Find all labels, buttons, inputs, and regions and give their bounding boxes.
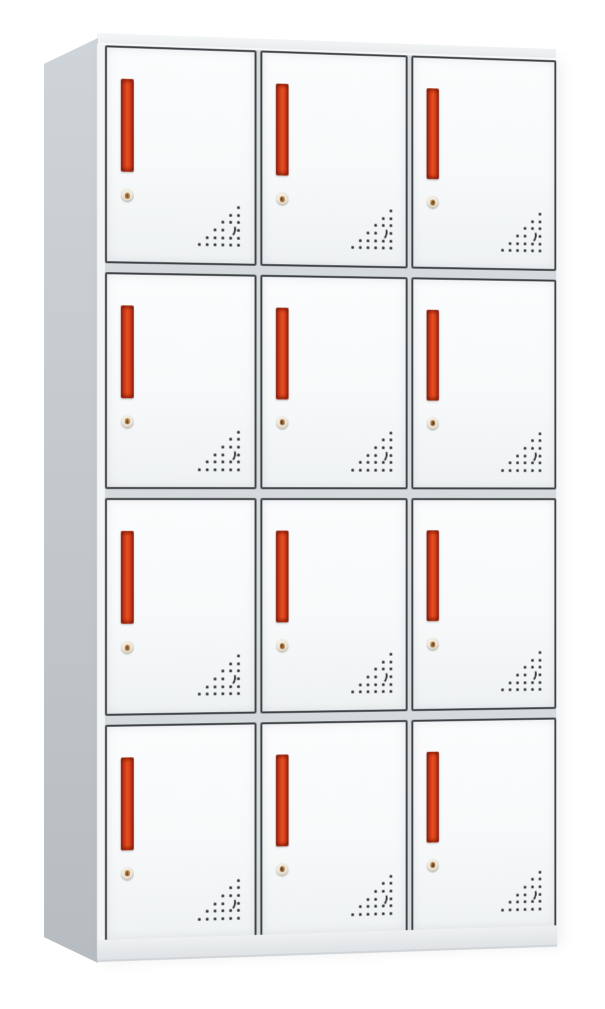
vent-hole-dot	[508, 461, 511, 464]
vent-hole-dot	[229, 887, 232, 890]
lock-keyhole-slot	[127, 871, 128, 875]
vent-hole-dot	[237, 692, 240, 695]
vent-holes-icon	[196, 203, 243, 249]
vent-hole-dot	[214, 677, 217, 680]
door-lock-icon	[276, 862, 289, 875]
vent-hole-dot	[237, 886, 240, 889]
lock-core	[279, 196, 284, 202]
vent-hole-dot	[237, 236, 240, 239]
lock-keyhole-slot	[281, 197, 282, 200]
vent-hole-dot	[538, 432, 541, 435]
vent-hole-dot	[206, 693, 209, 696]
vent-hole-dot	[523, 249, 526, 252]
vent-hole-dot	[222, 685, 225, 688]
lock-keyhole-slot	[127, 645, 128, 649]
vent-hole-dot	[523, 908, 526, 911]
vent-hole-dot	[237, 879, 240, 882]
vent-hole-dot	[237, 662, 240, 665]
vent-hole-dot	[374, 912, 377, 915]
vent-hole-dot	[538, 461, 541, 464]
lock-keyhole-slot	[432, 642, 433, 645]
vent-hole-dot	[366, 468, 369, 471]
vent-hole-dot	[366, 461, 369, 464]
vent-hole-dot	[389, 683, 392, 686]
vent-hole-dot	[389, 454, 392, 457]
door-lock-icon	[427, 417, 439, 430]
vent-hole-dot	[389, 239, 392, 242]
vent-hole-dot	[523, 227, 526, 230]
vent-hole-dot	[222, 692, 225, 695]
locker-cabinet-photo	[0, 0, 605, 1009]
lock-core	[125, 870, 130, 876]
vent-hole-dot	[237, 453, 240, 456]
vent-hole-dot	[366, 454, 369, 457]
vent-hole-dot	[531, 249, 534, 252]
vent-hole-dot	[374, 890, 377, 893]
vent-hole-dot	[366, 905, 369, 908]
vent-hole-dot	[523, 461, 526, 464]
vent-hole-dot	[214, 917, 217, 920]
vent-crescent-hole	[377, 891, 389, 905]
door-lock-icon	[276, 416, 289, 429]
vent-hole-dot	[531, 220, 534, 223]
vent-hole-dot	[222, 244, 225, 247]
vent-hole-dot	[389, 882, 392, 885]
vent-hole-dot	[374, 461, 377, 464]
vent-hole-dot	[538, 242, 541, 245]
vent-hole-dot	[389, 653, 392, 656]
vent-crescent-hole	[225, 672, 237, 687]
vent-hole-dot	[523, 469, 526, 472]
vent-hole-dot	[523, 235, 526, 238]
vent-hole-dot	[222, 236, 225, 239]
vent-hole-dot	[389, 446, 392, 449]
vent-hole-dot	[351, 913, 354, 916]
lock-core	[431, 199, 436, 205]
door-handle-icon	[427, 751, 439, 842]
door-lock-icon	[427, 638, 439, 651]
vent-hole-dot	[351, 468, 354, 471]
vent-hole-dot	[359, 239, 362, 242]
vent-holes-icon	[196, 876, 243, 923]
vent-hole-dot	[382, 660, 385, 663]
locker-door	[260, 274, 408, 489]
vent-holes-icon	[349, 872, 395, 918]
locker-door-grid	[105, 45, 556, 941]
vent-hole-dot	[531, 878, 534, 881]
vent-hole-dot	[389, 224, 392, 227]
vent-hole-dot	[538, 666, 541, 669]
vent-hole-dot	[237, 894, 240, 897]
locker-door	[105, 498, 256, 715]
vent-hole-dot	[237, 916, 240, 919]
vent-hole-dot	[523, 454, 526, 457]
vent-hole-dot	[523, 666, 526, 669]
vent-holes-icon	[349, 429, 395, 474]
vent-hole-dot	[389, 675, 392, 678]
vent-hole-dot	[229, 662, 232, 665]
vent-hole-dot	[516, 908, 519, 911]
door-handle-icon	[121, 757, 134, 850]
vent-hole-dot	[237, 685, 240, 688]
vent-hole-dot	[198, 243, 201, 246]
vent-hole-dot	[538, 870, 541, 873]
vent-hole-dot	[538, 228, 541, 231]
vent-hole-dot	[501, 249, 504, 252]
vent-hole-dot	[374, 224, 377, 227]
vent-hole-dot	[538, 213, 541, 216]
vent-hole-dot	[222, 453, 225, 456]
vent-hole-dot	[237, 446, 240, 449]
vent-holes-icon	[498, 868, 543, 913]
door-handle-icon	[276, 307, 289, 399]
vent-crescent-hole	[225, 447, 237, 462]
vent-crescent-hole	[225, 223, 237, 238]
vent-hole-dot	[523, 242, 526, 245]
vent-hole-dot	[214, 468, 217, 471]
vent-hole-dot	[214, 453, 217, 456]
vent-hole-dot	[222, 460, 225, 463]
door-lock-icon	[121, 415, 134, 428]
vent-hole-dot	[351, 691, 354, 694]
locker-door	[105, 272, 256, 490]
locker-door	[412, 498, 557, 711]
vent-hole-dot	[508, 901, 511, 904]
vent-hole-dot	[508, 469, 511, 472]
vent-hole-dot	[516, 249, 519, 252]
vent-hole-dot	[206, 917, 209, 920]
vent-hole-dot	[389, 875, 392, 878]
vent-hole-dot	[374, 897, 377, 900]
vent-hole-dot	[538, 651, 541, 654]
door-handle-icon	[427, 309, 439, 400]
vent-hole-dot	[531, 659, 534, 662]
vent-hole-dot	[538, 659, 541, 662]
lock-core	[125, 418, 130, 424]
vent-hole-dot	[359, 913, 362, 916]
vent-hole-dot	[538, 220, 541, 223]
vent-crescent-hole	[526, 668, 538, 682]
vent-hole-dot	[229, 468, 232, 471]
vent-hole-dot	[366, 683, 369, 686]
locker-door	[105, 45, 256, 265]
vent-hole-dot	[366, 898, 369, 901]
vent-holes-icon	[196, 428, 243, 473]
vent-hole-dot	[538, 885, 541, 888]
vent-hole-dot	[538, 454, 541, 457]
vent-hole-dot	[523, 688, 526, 691]
vent-holes-icon	[349, 651, 395, 696]
vent-crescent-hole	[377, 226, 389, 241]
door-handle-icon	[121, 531, 134, 624]
door-handle-icon	[427, 88, 439, 179]
vent-hole-dot	[389, 889, 392, 892]
vent-hole-dot	[508, 908, 511, 911]
vent-hole-dot	[538, 250, 541, 253]
lock-core	[279, 419, 284, 425]
vent-crescent-hole	[526, 887, 538, 901]
vent-hole-dot	[206, 243, 209, 246]
vent-hole-dot	[389, 439, 392, 442]
vent-hole-dot	[359, 246, 362, 249]
vent-hole-dot	[222, 902, 225, 905]
vent-hole-dot	[389, 897, 392, 900]
vent-hole-dot	[508, 688, 511, 691]
vent-hole-dot	[374, 683, 377, 686]
door-lock-icon	[427, 196, 439, 209]
vent-hole-dot	[538, 892, 541, 895]
vent-hole-dot	[516, 681, 519, 684]
vent-crescent-hole	[526, 448, 538, 462]
vent-hole-dot	[214, 902, 217, 905]
vent-hole-dot	[389, 912, 392, 915]
vent-hole-dot	[538, 447, 541, 450]
vent-hole-dot	[516, 454, 519, 457]
vent-hole-dot	[237, 438, 240, 441]
vent-hole-dot	[366, 246, 369, 249]
vent-hole-dot	[389, 431, 392, 434]
door-handle-icon	[121, 305, 134, 398]
vent-hole-dot	[198, 918, 201, 921]
vent-hole-dot	[351, 246, 354, 249]
vent-hole-dot	[237, 461, 240, 464]
vent-hole-dot	[531, 907, 534, 910]
vent-hole-dot	[237, 655, 240, 658]
lock-keyhole-slot	[127, 419, 128, 423]
vent-hole-dot	[538, 907, 541, 910]
vent-hole-dot	[538, 900, 541, 903]
vent-hole-dot	[516, 674, 519, 677]
vent-hole-dot	[374, 246, 377, 249]
vent-hole-dot	[366, 912, 369, 915]
vent-hole-dot	[222, 229, 225, 232]
door-lock-icon	[121, 867, 134, 880]
lock-core	[125, 644, 130, 650]
vent-hole-dot	[237, 468, 240, 471]
vent-hole-dot	[237, 901, 240, 904]
vent-hole-dot	[389, 217, 392, 220]
vent-hole-dot	[214, 910, 217, 913]
vent-hole-dot	[501, 689, 504, 692]
vent-hole-dot	[359, 691, 362, 694]
vent-holes-icon	[349, 206, 395, 252]
vent-hole-dot	[214, 236, 217, 239]
vent-hole-dot	[237, 214, 240, 217]
vent-hole-dot	[214, 693, 217, 696]
locker-door	[412, 277, 557, 490]
vent-hole-dot	[516, 893, 519, 896]
vent-hole-dot	[359, 905, 362, 908]
cabinet-front-face	[97, 44, 557, 962]
vent-hole-dot	[374, 690, 377, 693]
lock-keyhole-slot	[281, 867, 282, 870]
vent-hole-dot	[538, 681, 541, 684]
door-lock-icon	[121, 189, 134, 202]
lock-core	[431, 420, 436, 426]
vent-hole-dot	[531, 439, 534, 442]
vent-hole-dot	[516, 242, 519, 245]
lock-core	[279, 643, 284, 649]
cabinet-side-panel	[44, 38, 98, 963]
vent-holes-icon	[498, 210, 543, 255]
vent-hole-dot	[523, 900, 526, 903]
vent-hole-dot	[508, 242, 511, 245]
vent-hole-dot	[229, 438, 232, 441]
door-handle-icon	[121, 79, 134, 172]
vent-hole-dot	[237, 909, 240, 912]
vent-hole-dot	[198, 468, 201, 471]
vent-hole-dot	[229, 917, 232, 920]
lock-core	[279, 866, 284, 872]
vent-hole-dot	[389, 668, 392, 671]
vent-hole-dot	[359, 468, 362, 471]
vent-hole-dot	[538, 439, 541, 442]
vent-holes-icon	[196, 652, 243, 698]
vent-hole-dot	[214, 243, 217, 246]
vent-hole-dot	[374, 454, 377, 457]
vent-hole-dot	[374, 468, 377, 471]
vent-hole-dot	[389, 247, 392, 250]
vent-hole-dot	[523, 447, 526, 450]
lock-keyhole-slot	[432, 421, 433, 424]
vent-hole-dot	[374, 239, 377, 242]
door-lock-icon	[276, 639, 289, 652]
vent-hole-dot	[206, 468, 209, 471]
vent-hole-dot	[523, 681, 526, 684]
vent-hole-dot	[237, 430, 240, 433]
vent-hole-dot	[222, 445, 225, 448]
vent-hole-dot	[538, 469, 541, 472]
vent-hole-dot	[214, 228, 217, 231]
lock-keyhole-slot	[281, 420, 282, 423]
vent-hole-dot	[222, 670, 225, 673]
vent-hole-dot	[222, 894, 225, 897]
vent-hole-dot	[508, 681, 511, 684]
lock-keyhole-slot	[127, 193, 128, 197]
vent-hole-dot	[222, 909, 225, 912]
vent-hole-dot	[382, 217, 385, 220]
vent-hole-dot	[382, 468, 385, 471]
vent-hole-dot	[222, 221, 225, 224]
vent-hole-dot	[214, 460, 217, 463]
vent-hole-dot	[538, 235, 541, 238]
lock-core	[431, 641, 436, 647]
vent-hole-dot	[389, 904, 392, 907]
vent-hole-dot	[366, 231, 369, 234]
door-handle-icon	[276, 754, 289, 846]
vent-hole-dot	[229, 214, 232, 217]
vent-crescent-hole	[526, 229, 538, 243]
door-handle-icon	[427, 530, 439, 621]
vent-crescent-hole	[377, 670, 389, 684]
vent-hole-dot	[501, 908, 504, 911]
vent-hole-dot	[237, 229, 240, 232]
lock-keyhole-slot	[281, 644, 282, 647]
vent-hole-dot	[206, 460, 209, 463]
vent-hole-dot	[382, 439, 385, 442]
vent-hole-dot	[366, 239, 369, 242]
vent-hole-dot	[516, 461, 519, 464]
vent-hole-dot	[382, 912, 385, 915]
door-handle-icon	[276, 84, 289, 176]
door-lock-icon	[427, 858, 439, 871]
vent-holes-icon	[498, 649, 543, 694]
vent-hole-dot	[229, 244, 232, 247]
vent-hole-dot	[501, 469, 504, 472]
door-lock-icon	[121, 641, 134, 654]
locker-door	[260, 719, 408, 936]
lock-core	[431, 862, 436, 868]
vent-hole-dot	[531, 688, 534, 691]
vent-hole-dot	[389, 461, 392, 464]
lock-core	[125, 192, 130, 198]
vent-holes-icon	[498, 430, 543, 474]
vent-hole-dot	[237, 244, 240, 247]
vent-hole-dot	[206, 236, 209, 239]
locker-door	[412, 56, 557, 271]
vent-hole-dot	[237, 670, 240, 673]
vent-hole-dot	[237, 677, 240, 680]
vent-hole-dot	[389, 660, 392, 663]
vent-hole-dot	[374, 905, 377, 908]
vent-hole-dot	[538, 673, 541, 676]
door-handle-icon	[276, 531, 289, 623]
locker-door	[412, 717, 557, 932]
vent-hole-dot	[508, 249, 511, 252]
vent-hole-dot	[538, 878, 541, 881]
vent-hole-dot	[237, 221, 240, 224]
vent-hole-dot	[382, 247, 385, 250]
vent-hole-dot	[389, 232, 392, 235]
vent-hole-dot	[374, 232, 377, 235]
vent-crescent-hole	[225, 896, 237, 910]
vent-hole-dot	[359, 461, 362, 464]
vent-hole-dot	[206, 910, 209, 913]
vent-hole-dot	[523, 893, 526, 896]
vent-hole-dot	[523, 886, 526, 889]
vent-hole-dot	[382, 690, 385, 693]
vent-hole-dot	[214, 685, 217, 688]
vent-hole-dot	[366, 690, 369, 693]
vent-hole-dot	[374, 675, 377, 678]
vent-hole-dot	[389, 690, 392, 693]
vent-hole-dot	[222, 917, 225, 920]
locker-door	[105, 722, 256, 942]
vent-hole-dot	[229, 692, 232, 695]
vent-hole-dot	[237, 206, 240, 209]
vent-hole-dot	[516, 688, 519, 691]
lock-keyhole-slot	[432, 863, 433, 866]
vent-hole-dot	[374, 668, 377, 671]
vent-hole-dot	[222, 677, 225, 680]
vent-hole-dot	[389, 468, 392, 471]
vent-hole-dot	[516, 234, 519, 237]
vent-crescent-hole	[377, 448, 389, 463]
vent-hole-dot	[382, 882, 385, 885]
vent-hole-dot	[359, 683, 362, 686]
vent-hole-dot	[389, 210, 392, 213]
vent-hole-dot	[374, 446, 377, 449]
vent-hole-dot	[198, 693, 201, 696]
vent-hole-dot	[516, 901, 519, 904]
vent-hole-dot	[516, 469, 519, 472]
vent-hole-dot	[531, 469, 534, 472]
vent-hole-dot	[222, 468, 225, 471]
vent-hole-dot	[206, 685, 209, 688]
lock-keyhole-slot	[432, 200, 433, 203]
locker-door	[260, 50, 408, 268]
door-lock-icon	[276, 192, 289, 205]
